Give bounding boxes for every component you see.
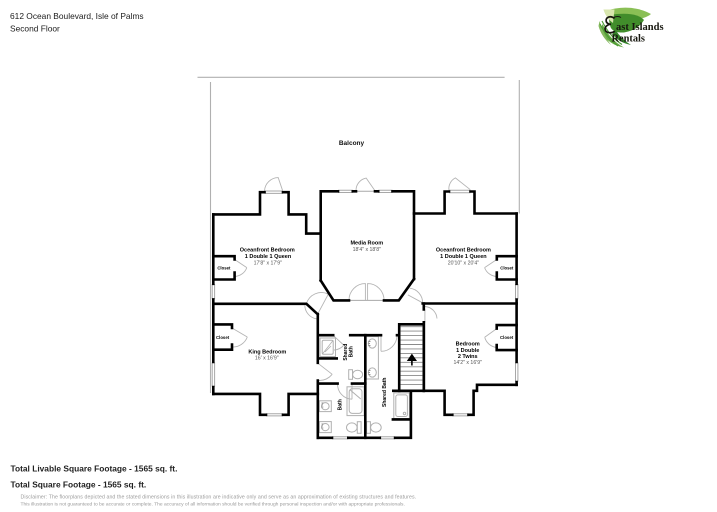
svg-text:ast Islands: ast Islands <box>616 22 664 33</box>
svg-text:Total Livable Square Footage -: Total Livable Square Footage - 1565 sq. … <box>11 464 178 474</box>
svg-text:Oceanfront Bedroom: Oceanfront Bedroom <box>436 247 491 253</box>
svg-text:Balcony: Balcony <box>339 140 365 147</box>
svg-text:Oceanfront Bedroom: Oceanfront Bedroom <box>240 247 295 253</box>
svg-text:18'4" x 18'8": 18'4" x 18'8" <box>353 247 382 253</box>
svg-text:16' x 16'9": 16' x 16'9" <box>255 356 279 362</box>
svg-text:Rentals: Rentals <box>612 33 645 44</box>
svg-text:Disclaimer: The floorplans dep: Disclaimer: The floorplans depicted and … <box>21 495 417 501</box>
svg-text:Second Floor: Second Floor <box>10 24 60 34</box>
svg-text:Bath: Bath <box>349 346 355 357</box>
svg-text:Closet: Closet <box>216 335 230 340</box>
svg-text:Closet: Closet <box>217 266 231 271</box>
svg-text:Shared Bath: Shared Bath <box>382 378 388 407</box>
svg-text:1 Double 1 Queen: 1 Double 1 Queen <box>245 254 292 260</box>
svg-text:2 Twins: 2 Twins <box>458 354 478 360</box>
svg-text:Bedroom: Bedroom <box>456 342 480 348</box>
svg-text:Bath: Bath <box>338 399 344 410</box>
svg-text:17'8" x 17'9": 17'8" x 17'9" <box>254 260 283 266</box>
svg-text:Closet: Closet <box>500 335 514 340</box>
svg-text:King Bedroom: King Bedroom <box>248 349 286 355</box>
svg-text:Media Room: Media Room <box>350 241 383 247</box>
svg-text:This illustration is not guara: This illustration is not guaranteed to b… <box>21 502 405 508</box>
svg-text:Closet: Closet <box>500 266 514 271</box>
svg-text:14'2" x 16'9": 14'2" x 16'9" <box>453 360 482 366</box>
svg-text:612 Ocean Boulevard, Isle of P: 612 Ocean Boulevard, Isle of Palms <box>10 11 144 21</box>
svg-text:1 Double 1 Queen: 1 Double 1 Queen <box>440 254 487 260</box>
svg-text:20'10" x 20'4": 20'10" x 20'4" <box>448 260 479 266</box>
svg-text:Total Square Footage - 1565 sq: Total Square Footage - 1565 sq. ft. <box>11 480 147 490</box>
